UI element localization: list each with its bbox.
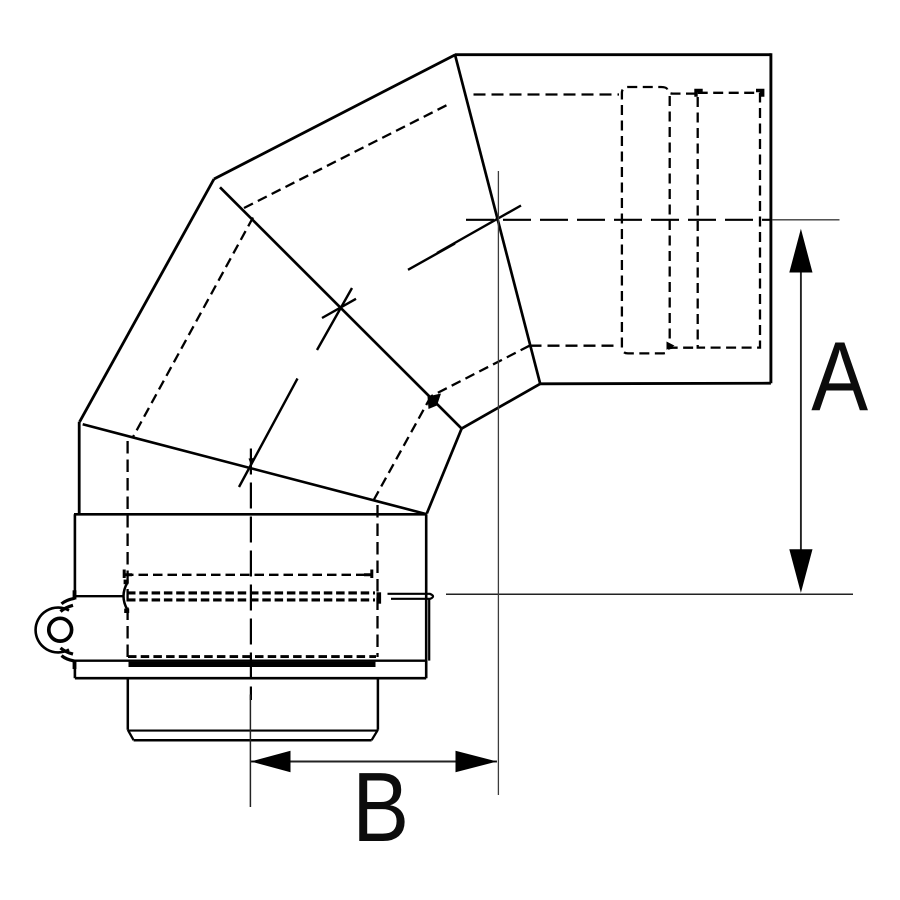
svg-text:B: B [352,754,409,863]
svg-text:A: A [811,323,869,432]
